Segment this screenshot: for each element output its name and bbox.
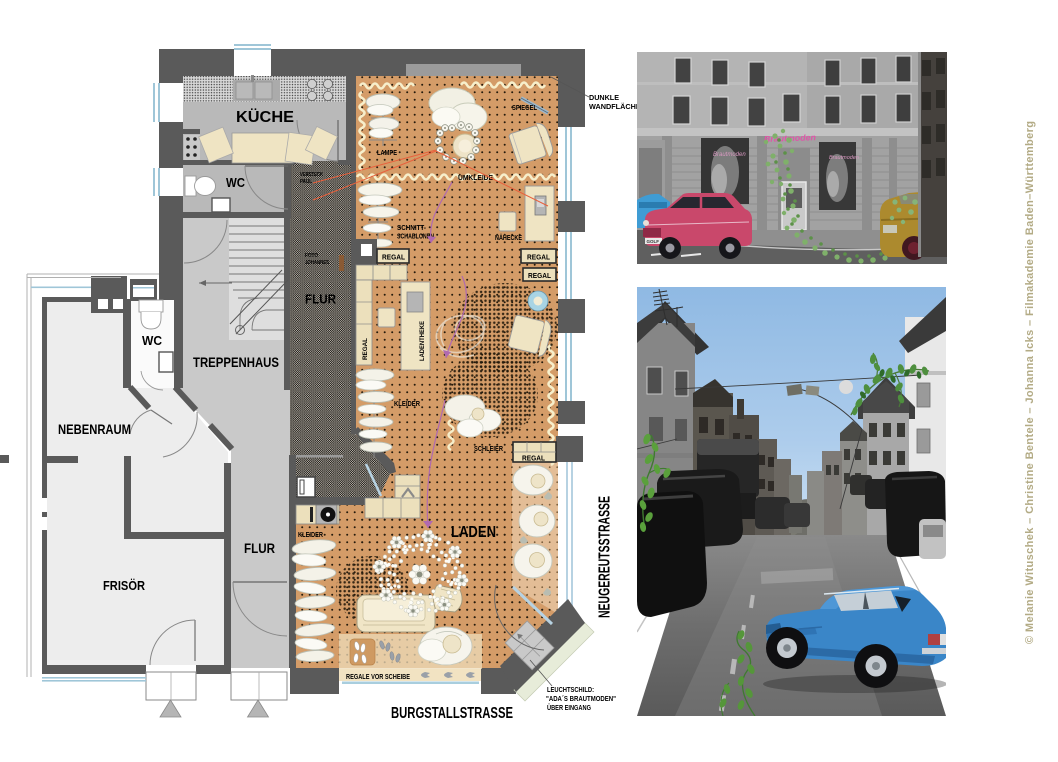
- svg-text:© Melanie Wituschek – Christin: © Melanie Wituschek – Christine Bentele …: [1024, 121, 1036, 644]
- svg-text:WC: WC: [226, 175, 246, 190]
- svg-text:Brautmoden: Brautmoden: [829, 155, 859, 161]
- svg-text:LEUCHTSCHILD:: LEUCHTSCHILD:: [547, 685, 594, 694]
- svg-text:UMKLEIDE: UMKLEIDE: [458, 173, 493, 182]
- svg-text:VERSTECK: VERSTECK: [300, 172, 324, 178]
- svg-text:FOTO: FOTO: [305, 253, 318, 259]
- svg-text:DUNKLE: DUNKLE: [589, 93, 619, 102]
- svg-text:TREPPENHAUS: TREPPENHAUS: [193, 355, 279, 370]
- svg-text:GOLF: GOLF: [647, 239, 660, 244]
- svg-text:KÜCHE: KÜCHE: [236, 109, 294, 126]
- svg-text:REGAL: REGAL: [527, 255, 551, 262]
- svg-text:FRISÖR: FRISÖR: [103, 578, 145, 593]
- svg-text:REGAL: REGAL: [382, 255, 406, 262]
- svg-text:NEUGEREUTSSTRASSE: NEUGEREUTSSTRASSE: [597, 496, 614, 618]
- svg-text:JOHANNES: JOHANNES: [305, 260, 329, 266]
- svg-text:LADEN: LADEN: [451, 524, 496, 541]
- svg-text:KLEIDER: KLEIDER: [298, 532, 323, 539]
- svg-text:KLEIDER: KLEIDER: [394, 401, 420, 408]
- svg-text:FLUR: FLUR: [305, 293, 336, 307]
- svg-text:REGALE VOR SCHEIBE: REGALE VOR SCHEIBE: [346, 672, 410, 681]
- svg-text:SCHLEIER: SCHLEIER: [474, 446, 503, 453]
- svg-text:"ADA´S BRAUTMODEN": "ADA´S BRAUTMODEN": [546, 694, 616, 703]
- svg-text:REGAL: REGAL: [362, 338, 369, 360]
- svg-text:Brautmoden: Brautmoden: [713, 152, 746, 158]
- svg-text:LADENTHEKE: LADENTHEKE: [419, 320, 426, 361]
- svg-text:FLUR: FLUR: [244, 541, 275, 556]
- svg-text:ÜBER EINGANG: ÜBER EINGANG: [547, 703, 591, 712]
- svg-text:REGAL: REGAL: [528, 273, 552, 280]
- svg-text:NEBENRAUM: NEBENRAUM: [58, 421, 131, 437]
- svg-text:NÄHECKE: NÄHECKE: [495, 234, 522, 242]
- svg-text:WC: WC: [142, 334, 162, 348]
- svg-text:LAMPE: LAMPE: [377, 150, 397, 157]
- svg-text:SPIEGEL: SPIEGEL: [512, 105, 538, 112]
- svg-text:PAUL: PAUL: [300, 179, 312, 185]
- svg-text:BURGSTALLSTRASSE: BURGSTALLSTRASSE: [391, 705, 513, 722]
- svg-text:REGAL: REGAL: [522, 456, 546, 463]
- svg-text:SCHNITT-: SCHNITT-: [397, 225, 427, 232]
